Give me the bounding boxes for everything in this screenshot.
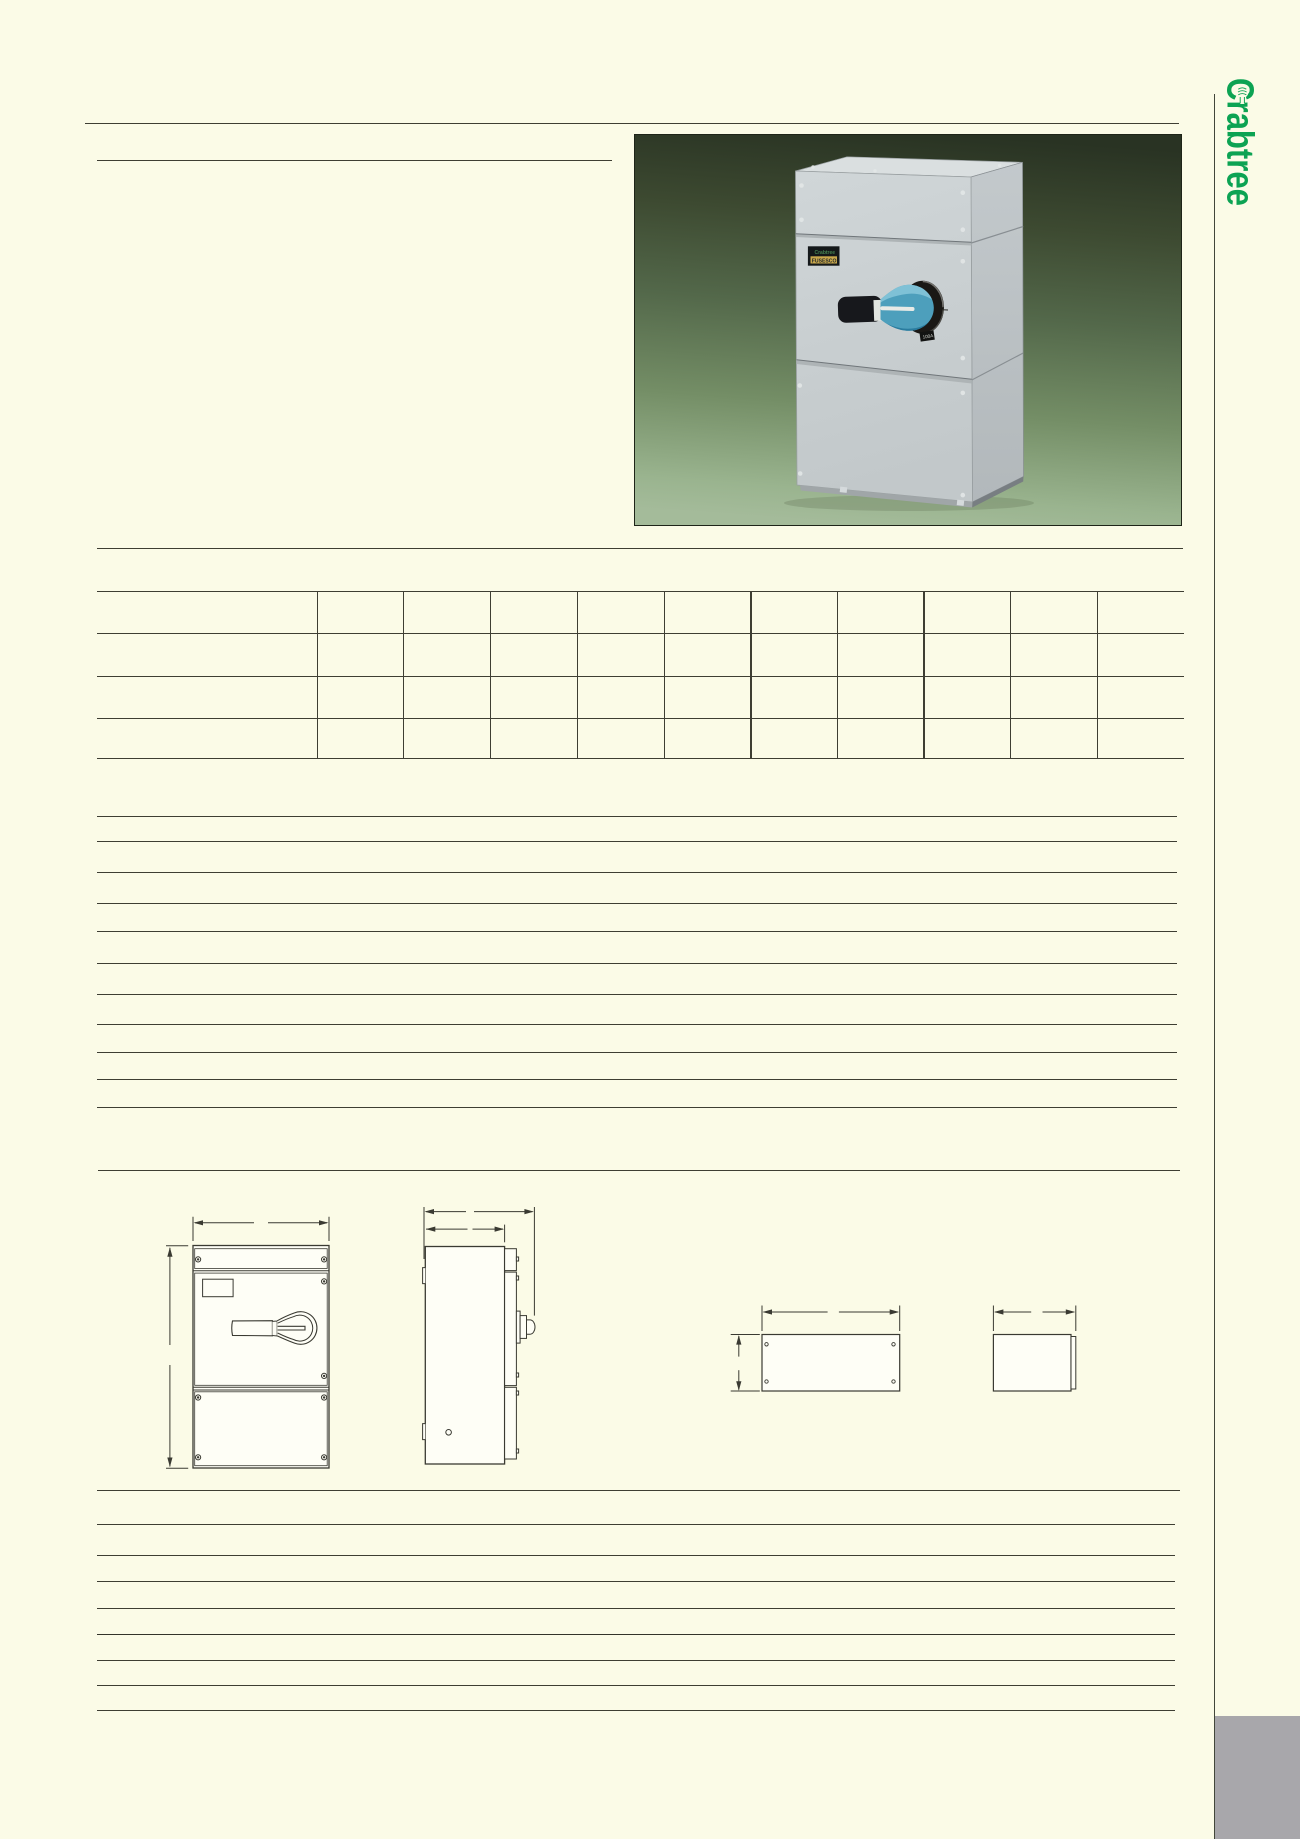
svg-text:FUSESCO: FUSESCO bbox=[812, 258, 837, 264]
svg-text:Crabtree: Crabtree bbox=[815, 250, 836, 256]
